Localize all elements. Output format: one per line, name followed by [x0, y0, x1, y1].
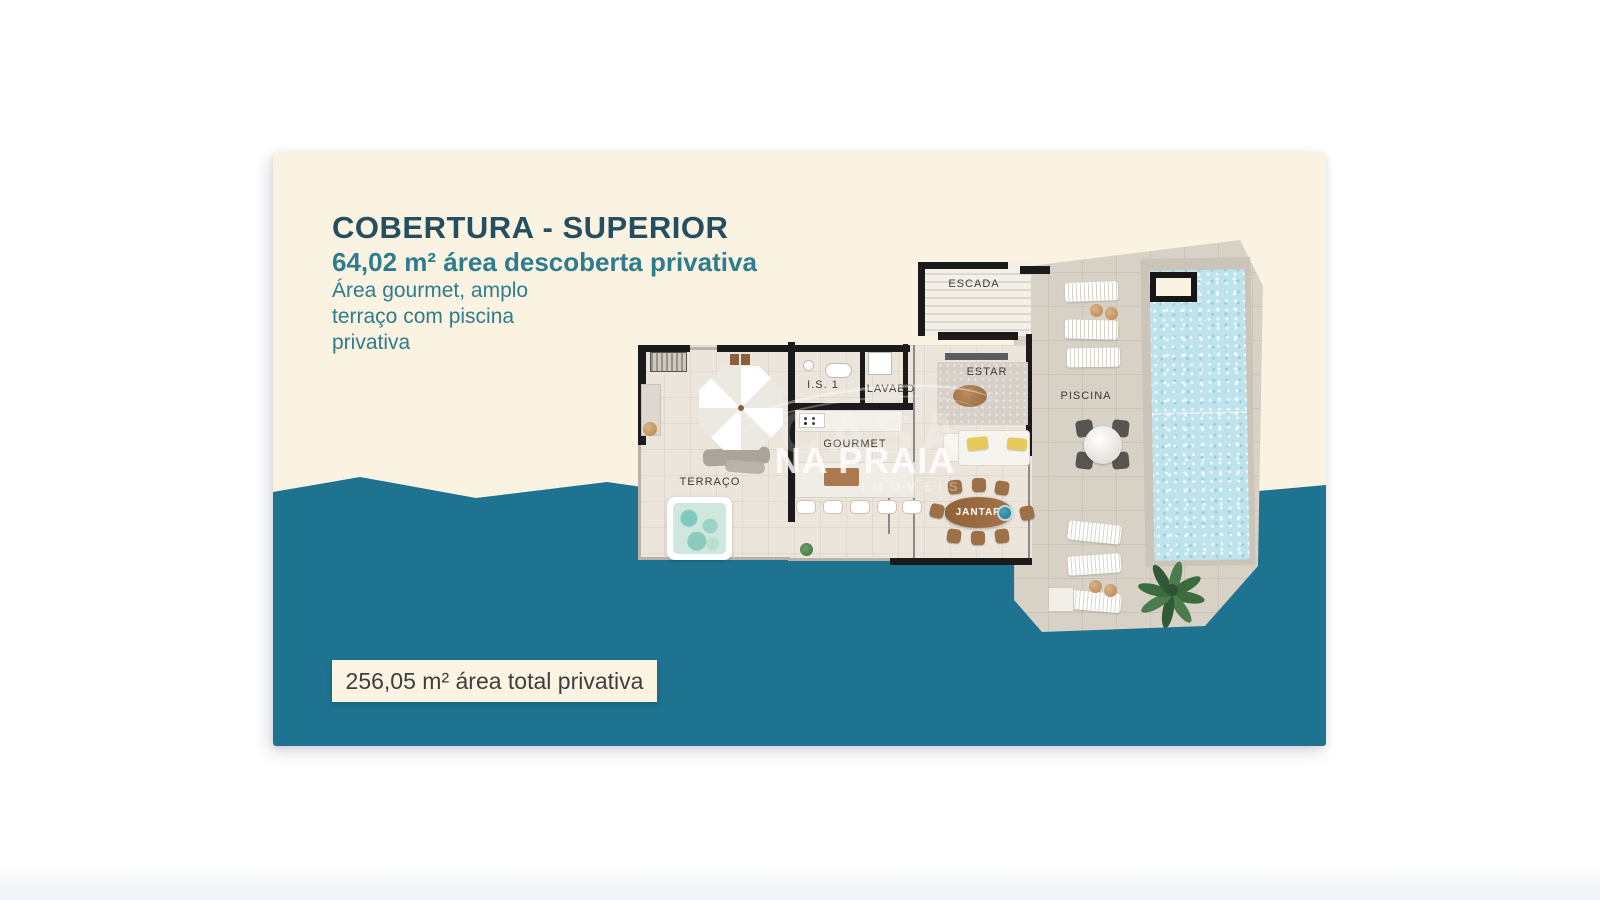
- room-label-escada: ESCADA: [918, 278, 1030, 290]
- floorplan-card: COBERTURA - SUPERIOR 64,02 m² área desco…: [273, 152, 1326, 746]
- wall: [1020, 266, 1050, 274]
- tv-console: [945, 353, 1008, 360]
- outdoor-table: [1084, 426, 1122, 464]
- room-label-jantar: JANTAR: [956, 507, 1002, 518]
- wall-edge: [788, 558, 890, 561]
- plant: [800, 543, 813, 556]
- pillow: [1007, 437, 1028, 451]
- description-line: privativa: [332, 330, 528, 356]
- sun-lounger: [1067, 348, 1120, 368]
- room-label-is1: I.S. 1: [798, 379, 848, 391]
- tray: [741, 354, 750, 365]
- side-table: [1048, 587, 1074, 612]
- bar-stool: [796, 500, 816, 514]
- bar-stool: [850, 500, 870, 514]
- hot-tub: [667, 497, 732, 560]
- dining-chair: [994, 480, 1010, 496]
- sun-lounger: [1065, 281, 1119, 302]
- swimming-pool: [1149, 269, 1249, 561]
- room-label-estar: ESTAR: [937, 366, 1037, 378]
- wall-edge: [638, 445, 641, 560]
- ac-unit: [650, 352, 687, 372]
- pouf-table: [1090, 304, 1103, 317]
- palm-tree: [1139, 560, 1207, 626]
- bar-stool: [902, 500, 922, 514]
- dining-chair: [971, 531, 985, 545]
- watermark-imoveis: IMÓVEIS: [833, 479, 993, 494]
- page-subtitle: 64,02 m² área descoberta privativa: [332, 247, 757, 278]
- watermark-na-praia: NA PRAIA: [735, 440, 995, 482]
- bar-stool: [823, 500, 843, 514]
- toilet: [825, 363, 852, 378]
- pouf-table: [1105, 307, 1118, 320]
- total-area-box: 256,05 m² área total privativa: [332, 660, 657, 702]
- wall: [918, 262, 925, 336]
- page: COBERTURA - SUPERIOR 64,02 m² área desco…: [0, 0, 1600, 900]
- description-text: Área gourmet, amplo terraço com piscina …: [332, 278, 528, 356]
- room-label-piscina: PISCINA: [1036, 390, 1136, 402]
- total-area-label: 256,05 m² área total privativa: [346, 668, 644, 695]
- vanity: [868, 352, 892, 375]
- watermark-logo-icon: [997, 505, 1013, 521]
- basket: [643, 422, 657, 436]
- planter-box: [1150, 272, 1197, 302]
- sink: [803, 360, 814, 371]
- wall: [890, 558, 1032, 565]
- tray: [730, 354, 739, 365]
- description-line: terraço com piscina: [332, 304, 528, 330]
- window: [690, 347, 717, 350]
- bar-stool: [877, 500, 897, 514]
- description-line: Área gourmet, amplo: [332, 278, 528, 304]
- pool-lane-line: [1152, 411, 1247, 415]
- stairs-treads: [925, 267, 1031, 333]
- sun-lounger: [1067, 553, 1121, 576]
- wall: [717, 345, 910, 352]
- page-title: COBERTURA - SUPERIOR: [332, 210, 728, 246]
- pouf-table: [1089, 580, 1102, 593]
- dining-chair: [994, 528, 1010, 544]
- dining-chair: [946, 528, 962, 544]
- pouf-table: [1104, 584, 1117, 597]
- sun-lounger: [1065, 319, 1118, 339]
- wall: [918, 262, 1008, 269]
- wall: [938, 332, 1018, 340]
